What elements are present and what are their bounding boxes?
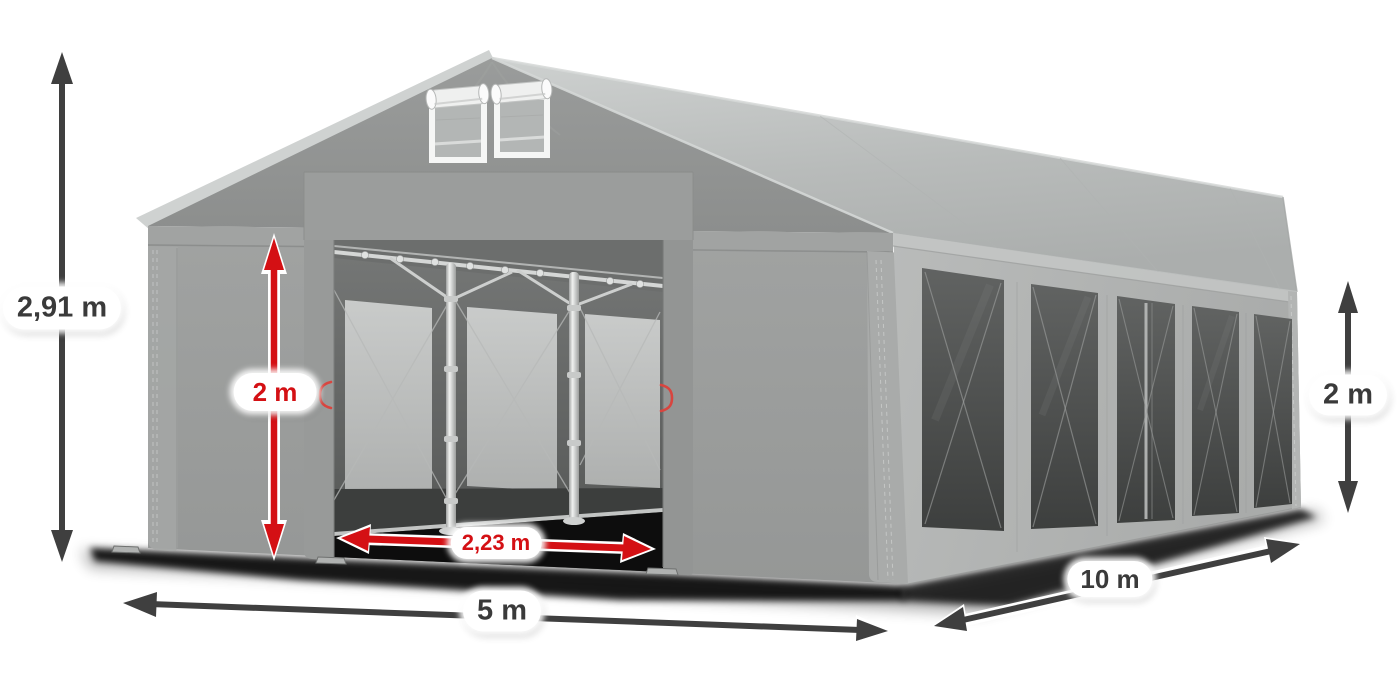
side-window: [922, 268, 1004, 531]
entrance-width-label: 2,23 m: [451, 527, 542, 559]
side-length-label: 10 m: [1067, 561, 1152, 597]
side-window: [1254, 314, 1292, 508]
front-left-corner: [148, 246, 178, 551]
entrance-interior: [334, 240, 663, 572]
front-width-label: 5 m: [463, 591, 541, 632]
side-window: [1117, 296, 1175, 523]
gable-vent: [490, 78, 553, 155]
tent-drawing: [0, 0, 1400, 700]
interior-far-window: [345, 300, 432, 497]
tent: [112, 50, 1301, 584]
tent-dimension-illustration: 2,91 m 2 m 2,23 m 5 m 10 m 2 m: [0, 0, 1400, 700]
entrance-height-label: 2 m: [234, 373, 317, 411]
interior-far-window: [467, 307, 557, 491]
gable-vent: [425, 83, 490, 160]
total-height-label: 2,91 m: [3, 287, 121, 330]
entrance-lintel: [304, 172, 693, 240]
side-window: [1192, 306, 1239, 516]
side-window: [1031, 284, 1098, 529]
side-height-label: 2 m: [1309, 375, 1387, 416]
